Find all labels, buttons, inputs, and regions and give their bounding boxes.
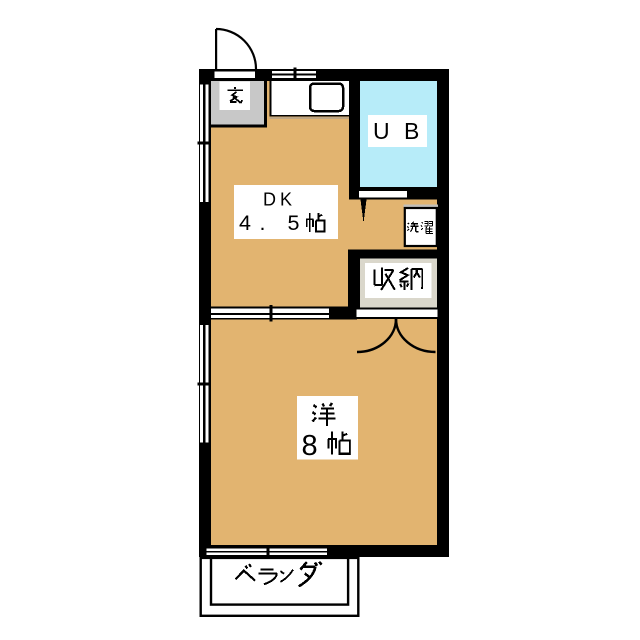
svg-text:8: 8 <box>302 430 318 462</box>
svg-text:.: . <box>260 211 266 235</box>
svg-text:U: U <box>373 118 390 144</box>
svg-text:4: 4 <box>239 211 251 235</box>
svg-text:K: K <box>280 189 292 209</box>
svg-text:B: B <box>404 118 419 144</box>
svg-text:D: D <box>263 189 276 209</box>
svg-text:5: 5 <box>288 211 300 235</box>
